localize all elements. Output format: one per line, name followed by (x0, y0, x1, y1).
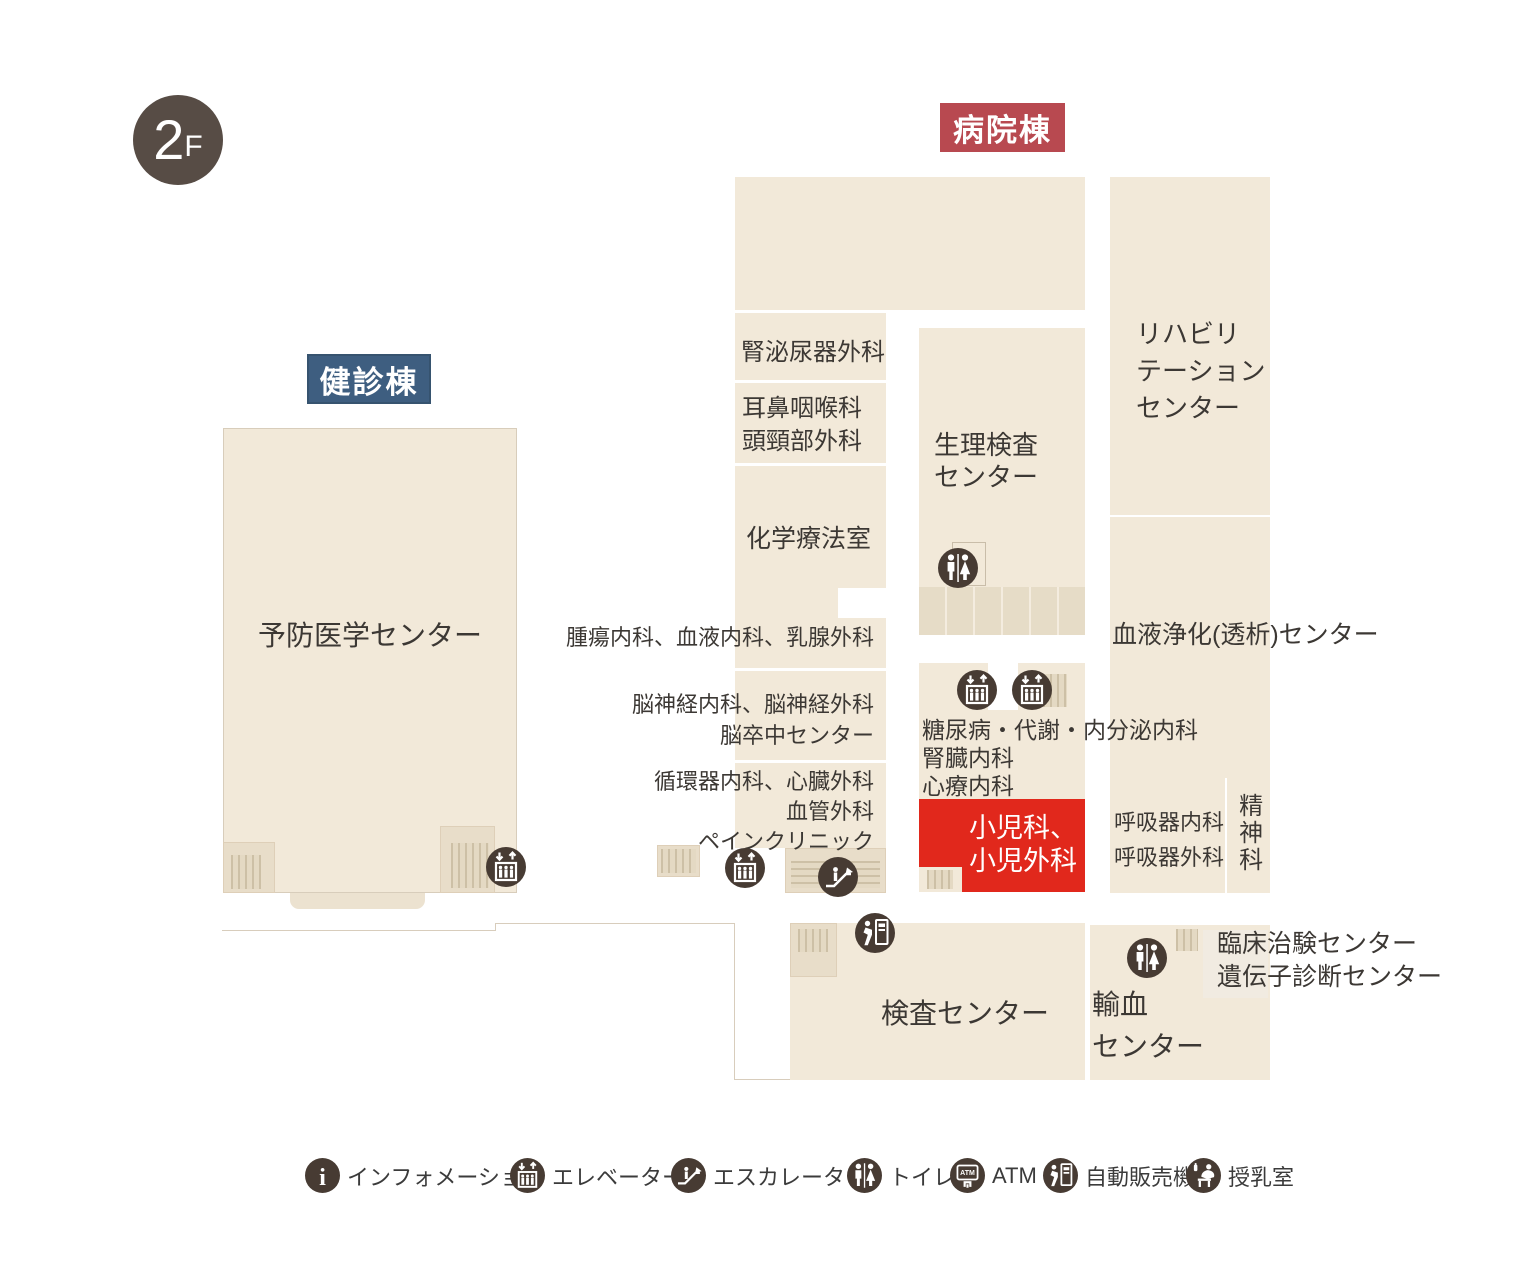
elevator-icon (957, 670, 997, 710)
legend-item-information: インフォメーション (305, 1158, 544, 1193)
room-label-test-center: 検査センター (845, 996, 1085, 1033)
legend-label: 自動販売機 (1085, 1160, 1195, 1192)
column-divider (735, 463, 886, 466)
floor-map-2f: 2 F 病院棟 健診棟 (0, 0, 1540, 1283)
stairs-texture (798, 929, 828, 952)
legend-label: エレベーター (552, 1160, 684, 1192)
corridor-wall (734, 923, 735, 1080)
room-label-preventive-medicine: 予防医学センター (238, 618, 502, 655)
column-notch (838, 588, 886, 618)
toilet-icon (847, 1158, 882, 1193)
column-divider (735, 668, 886, 671)
vending-machine-icon (1043, 1158, 1078, 1193)
room-label-blood-transfusion: 輸血 センター (1092, 984, 1204, 1068)
legend-item-escalator: エスカレーター (671, 1158, 867, 1193)
vending-machine-icon (855, 913, 895, 953)
legend-item-vending-machine: 自動販売機 (1043, 1158, 1195, 1193)
corridor-wall (734, 1079, 790, 1080)
stairs-texture (231, 855, 261, 889)
toilet-icon (1127, 938, 1167, 978)
corridor-wall (222, 930, 495, 931)
hospital-top-block (735, 177, 1085, 310)
escalator-icon (671, 1158, 706, 1193)
atm-icon (950, 1158, 985, 1193)
elevator-icon (510, 1158, 545, 1193)
elevator-icon (1012, 670, 1052, 710)
toilet-icon (938, 548, 978, 588)
room-label-neurology: 脳神経内科、脳神経外科 脳卒中センター (574, 689, 874, 751)
elevator-icon (725, 848, 765, 888)
room-label-clinical-trial: 臨床治験センター 遺伝子診断センター (1217, 928, 1442, 994)
room-label-rehabilitation: リハビリ テーション センター (1136, 316, 1265, 427)
column-divider (735, 760, 886, 763)
room-label-dialysis: 血液浄化(透析)センター (1112, 619, 1379, 652)
hospital-building-label: 病院棟 (940, 103, 1065, 152)
physio-exam-lower-band (919, 587, 1085, 635)
room-label-diabetes: 糖尿病・代謝・内分泌内科 腎臓内科 心療内科 (922, 716, 1198, 800)
room-label-ent: 耳鼻咽喉科 頭頸部外科 (742, 392, 862, 458)
floor-number: 2 (153, 112, 184, 168)
stairs-texture (451, 843, 489, 888)
checkup-south-porch (290, 893, 425, 909)
corridor-wall (495, 923, 735, 924)
corridor-wall (495, 923, 496, 931)
stairs-texture (1176, 929, 1198, 951)
room-label-psychiatry: 精神科 (1232, 793, 1264, 893)
legend-item-atm: ATM (950, 1158, 1037, 1193)
room-label-respiratory: 呼吸器内科 呼吸器外科 (1114, 805, 1224, 875)
floor-suffix: F (184, 132, 202, 162)
floor-badge: 2 F (133, 95, 223, 185)
legend-label: エスカレーター (713, 1160, 867, 1192)
nursing-room-icon (1186, 1158, 1221, 1193)
checkup-building-label: 健診棟 (307, 354, 431, 404)
legend-item-elevator: エレベーター (510, 1158, 684, 1193)
room-label-oncology: 腫瘍内科、血液内科、乳腺外科 (564, 623, 874, 652)
room-label-urology: 腎泌尿器外科 (741, 337, 885, 369)
elevator-icon (486, 847, 526, 887)
column-divider (735, 380, 886, 383)
stairs-texture (927, 870, 953, 889)
legend-label: ATM (992, 1163, 1037, 1189)
information-icon (305, 1158, 340, 1193)
room-label-cardiology: 循環器内科、心臓外科 血管外科 ペインクリニック (574, 767, 874, 857)
room-label-chemotherapy: 化学療法室 (746, 523, 871, 556)
room-label-physio-exam: 生理検査 センター (934, 429, 1038, 493)
legend-label: 授乳室 (1228, 1160, 1294, 1192)
legend-item-nursing-room: 授乳室 (1186, 1158, 1294, 1193)
preventive-medicine-block (223, 428, 517, 893)
legend-label: トイレ (889, 1160, 955, 1192)
escalator-icon (818, 857, 858, 897)
legend-item-toilet: トイレ (847, 1158, 955, 1193)
room-label-pediatrics: 小児科、 小児外科 (962, 812, 1084, 878)
